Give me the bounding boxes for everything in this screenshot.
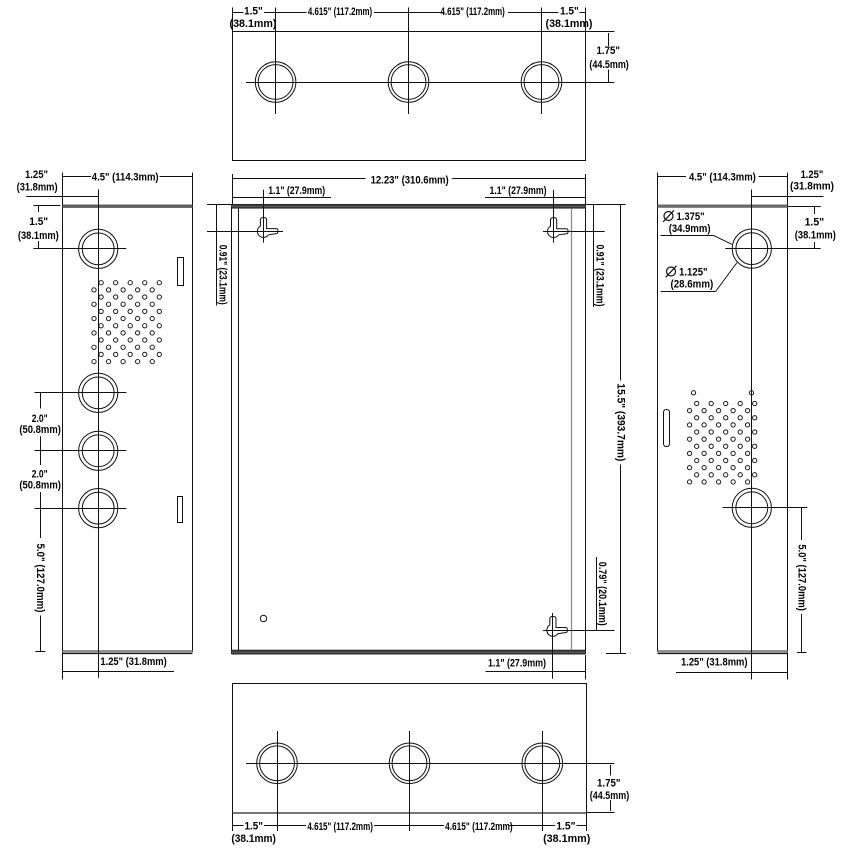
svg-text:0.79" (20.1mm): 0.79" (20.1mm): [596, 562, 608, 626]
svg-text:(34.9mm): (34.9mm): [669, 223, 711, 235]
svg-text:1.25": 1.25": [25, 169, 48, 181]
svg-text:(50.8mm): (50.8mm): [19, 480, 61, 492]
svg-text:1.75": 1.75": [597, 45, 621, 57]
svg-text:(50.8mm): (50.8mm): [19, 424, 61, 436]
svg-text:4.5" (114.3mm): 4.5" (114.3mm): [92, 171, 159, 183]
svg-text:1.5": 1.5": [245, 820, 263, 832]
svg-text:(38.1mm): (38.1mm): [231, 833, 276, 845]
svg-text:1.1" (27.9mm): 1.1" (27.9mm): [268, 185, 325, 197]
svg-text:0.91" (23.1mm): 0.91" (23.1mm): [593, 245, 605, 307]
svg-text:(38.1mm): (38.1mm): [546, 18, 593, 30]
svg-text:(31.8mm): (31.8mm): [17, 181, 58, 193]
svg-text:4.615" (117.2mm): 4.615" (117.2mm): [308, 6, 373, 18]
svg-text:1.25": 1.25": [801, 169, 824, 181]
svg-text:5.0" (127.0mm): 5.0" (127.0mm): [34, 544, 46, 613]
svg-text:4.5" (114.3mm): 4.5" (114.3mm): [689, 172, 756, 184]
svg-text:(38.1mm): (38.1mm): [18, 230, 59, 242]
svg-text:4.615" (117.2mm): 4.615" (117.2mm): [441, 6, 506, 18]
svg-text:12.23" (310.6mm): 12.23" (310.6mm): [371, 174, 449, 186]
svg-text:(44.5mm): (44.5mm): [589, 59, 629, 71]
svg-text:1.5": 1.5": [244, 6, 263, 18]
svg-text:1.5": 1.5": [805, 216, 825, 228]
svg-text:1.75": 1.75": [597, 777, 621, 789]
svg-text:(38.1mm): (38.1mm): [230, 18, 277, 30]
svg-text:1.25" (31.8mm): 1.25" (31.8mm): [100, 656, 167, 668]
svg-text:1.1" (27.9mm): 1.1" (27.9mm): [490, 185, 547, 197]
svg-text:1.5": 1.5": [560, 6, 579, 18]
svg-text:(38.1mm): (38.1mm): [795, 230, 836, 242]
svg-text:(38.1mm): (38.1mm): [543, 833, 591, 845]
svg-text:(31.8mm): (31.8mm): [790, 180, 834, 192]
svg-text:5.0" (127.0mm): 5.0" (127.0mm): [795, 544, 807, 611]
svg-text:1.1" (27.9mm): 1.1" (27.9mm): [488, 658, 546, 670]
svg-text:(44.5mm): (44.5mm): [590, 790, 630, 802]
svg-text:4.615" (117.2mm): 4.615" (117.2mm): [445, 821, 513, 833]
svg-text:1.375": 1.375": [677, 211, 705, 223]
svg-text:1.5": 1.5": [29, 216, 48, 228]
svg-text:(28.6mm): (28.6mm): [671, 279, 714, 291]
svg-text:1.5": 1.5": [556, 820, 575, 832]
svg-text:1.125": 1.125": [679, 267, 708, 279]
svg-text:0.91" (23.1mm): 0.91" (23.1mm): [216, 245, 228, 305]
svg-text:4.615" (117.2mm): 4.615" (117.2mm): [307, 821, 373, 833]
svg-text:1.25" (31.8mm): 1.25" (31.8mm): [681, 657, 748, 669]
svg-text:15.5" (393.7mm): 15.5" (393.7mm): [614, 383, 626, 461]
